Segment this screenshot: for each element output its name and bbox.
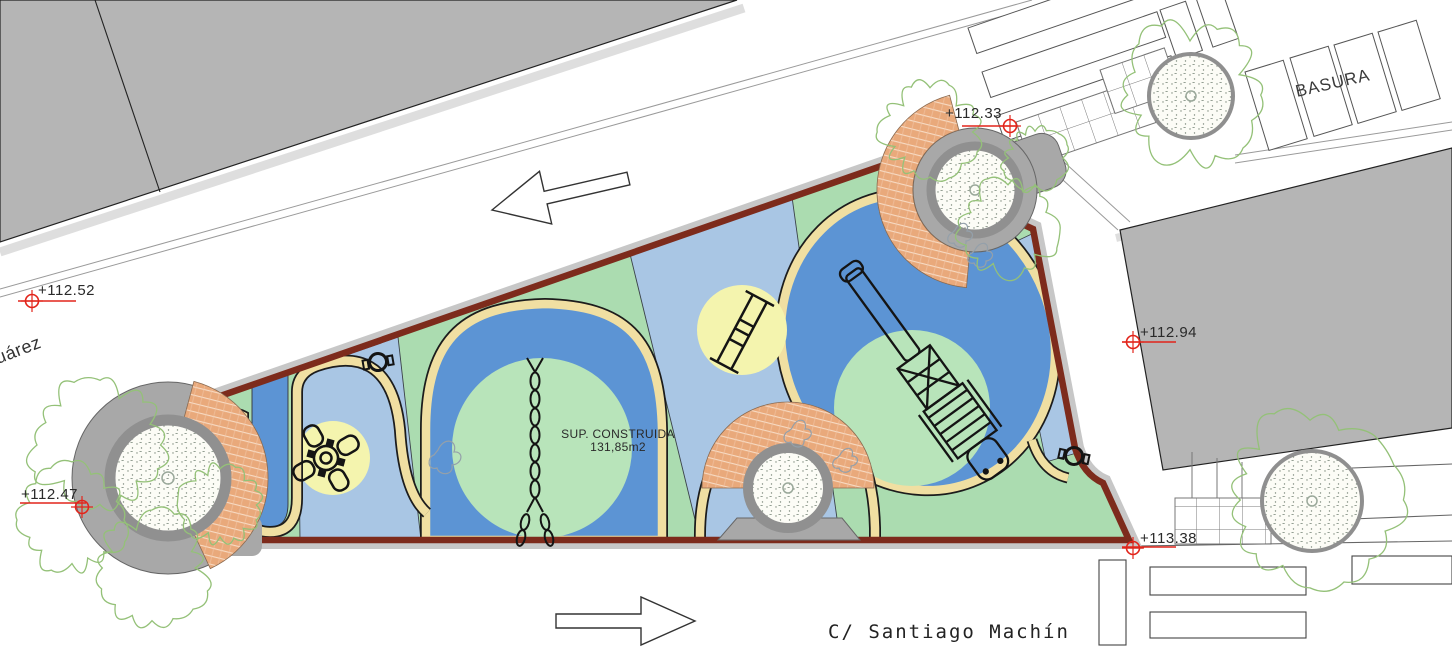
- planter-bed: [110, 420, 226, 536]
- elevation-value: +113.38: [1140, 530, 1197, 547]
- elevation-value: +112.47: [21, 486, 78, 503]
- built-area-note-line2: 131,85m2: [590, 440, 646, 454]
- building-northwest: [0, 0, 744, 252]
- parking-stripe: [1196, 0, 1238, 47]
- site-plan-drawing: +112.52 +112.47 +112.33 +112.94 +113.38 …: [0, 0, 1452, 652]
- building-east: [1116, 148, 1452, 470]
- street-furniture: [1150, 567, 1306, 595]
- elevation-marker-northwest: +112.52: [18, 282, 95, 312]
- tree-pit: [1262, 451, 1362, 551]
- elevation-value: +112.52: [38, 282, 95, 299]
- yellow-circle-seesaw: [697, 285, 787, 375]
- plan-canvas: +112.52 +112.47 +112.33 +112.94 +113.38 …: [0, 0, 1452, 652]
- tree-pit: [1149, 54, 1233, 138]
- parking-stripe: [1160, 1, 1202, 59]
- street-label-left: uárez: [0, 332, 44, 368]
- street-tree-north: [1149, 54, 1233, 138]
- traffic-arrow-west-icon: [492, 171, 630, 224]
- building-e-mass: [1120, 148, 1452, 470]
- street-tree-southeast: [1262, 451, 1362, 551]
- street-furniture: [1099, 560, 1126, 645]
- street-furniture: [1150, 612, 1306, 638]
- elevation-value: +112.33: [945, 105, 1002, 122]
- traffic-arrow-east-icon: [556, 597, 695, 645]
- elevation-value: +112.94: [1140, 324, 1197, 341]
- street-label-bottom: C/ Santiago Machín: [828, 621, 1070, 643]
- planter-bed: [748, 448, 828, 528]
- planter-west: [72, 381, 268, 574]
- built-area-note-line1: SUP. CONSTRUIDA: [561, 427, 675, 441]
